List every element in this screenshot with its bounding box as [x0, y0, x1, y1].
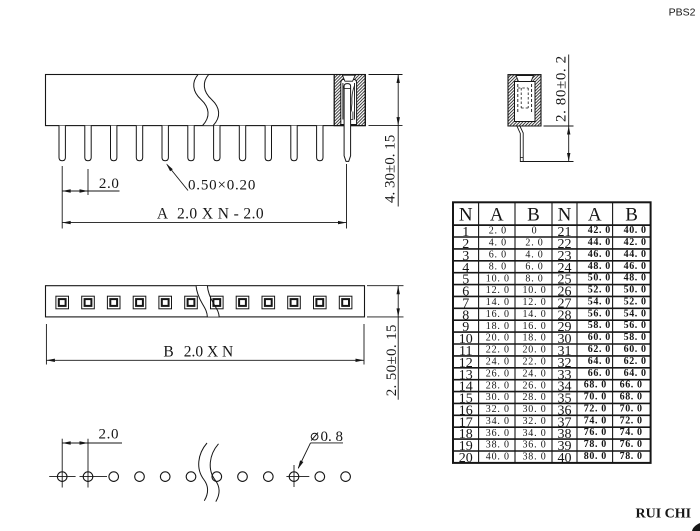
svg-text:54. 0: 54. 0 [588, 296, 611, 307]
svg-text:34. 0: 34. 0 [523, 428, 547, 439]
svg-text:70. 0: 70. 0 [620, 403, 643, 414]
svg-text:B: B [163, 343, 173, 360]
svg-text:38. 0: 38. 0 [486, 440, 510, 451]
svg-text:12. 0: 12. 0 [486, 285, 510, 296]
svg-text:RUI CHI: RUI CHI [636, 507, 692, 522]
svg-text:16. 0: 16. 0 [523, 321, 547, 332]
svg-text:6. 0: 6. 0 [489, 250, 507, 261]
svg-text:80. 0: 80. 0 [584, 451, 607, 462]
svg-text:18. 0: 18. 0 [523, 333, 547, 344]
svg-text:58. 0: 58. 0 [588, 320, 611, 331]
svg-text:24. 0: 24. 0 [523, 368, 547, 379]
svg-text:74. 0: 74. 0 [620, 427, 643, 438]
svg-text:38. 0: 38. 0 [523, 452, 547, 463]
svg-text:A: A [490, 204, 504, 225]
svg-text:2. 80±0. 2: 2. 80±0. 2 [553, 55, 569, 122]
svg-text:42. 0: 42. 0 [588, 225, 611, 236]
svg-text:72. 0: 72. 0 [620, 415, 643, 426]
svg-text:6. 0: 6. 0 [525, 261, 543, 272]
svg-text:10. 0: 10. 0 [486, 273, 510, 284]
svg-text:A: A [588, 204, 602, 225]
svg-text:28. 0: 28. 0 [486, 380, 510, 391]
svg-text:14. 0: 14. 0 [523, 309, 547, 320]
svg-text:42. 0: 42. 0 [624, 237, 647, 248]
svg-text:32. 0: 32. 0 [486, 404, 510, 415]
svg-text:2.0: 2.0 [99, 427, 120, 443]
svg-text:22. 0: 22. 0 [523, 357, 547, 368]
svg-text:12. 0: 12. 0 [523, 297, 547, 308]
svg-text:2.0: 2.0 [99, 176, 120, 192]
svg-text:32. 0: 32. 0 [523, 416, 547, 427]
svg-text:46. 0: 46. 0 [588, 249, 611, 260]
svg-text:52. 0: 52. 0 [588, 285, 611, 296]
svg-text:30. 0: 30. 0 [523, 404, 547, 415]
svg-text:8. 0: 8. 0 [489, 261, 507, 272]
svg-text:56. 0: 56. 0 [624, 320, 647, 331]
svg-text:40: 40 [558, 451, 572, 466]
svg-text:20: 20 [459, 451, 473, 466]
svg-text:10. 0: 10. 0 [523, 285, 547, 296]
svg-text:52. 0: 52. 0 [624, 296, 647, 307]
svg-text:N: N [558, 204, 572, 225]
svg-text:70. 0: 70. 0 [584, 392, 607, 403]
svg-text:68. 0: 68. 0 [620, 392, 643, 403]
svg-text:26. 0: 26. 0 [523, 380, 547, 391]
svg-text:2. 0: 2. 0 [525, 238, 543, 249]
svg-text:60. 0: 60. 0 [588, 332, 611, 343]
svg-text:46. 0: 46. 0 [624, 261, 647, 272]
svg-text:48. 0: 48. 0 [588, 261, 611, 272]
svg-text:22. 0: 22. 0 [486, 345, 510, 356]
svg-text:14. 0: 14. 0 [486, 297, 510, 308]
svg-text:4. 30±0. 15: 4. 30±0. 15 [383, 135, 399, 203]
svg-text:B: B [527, 204, 540, 225]
svg-text:2.0 X N: 2.0 X N [184, 343, 234, 360]
svg-text:66. 0: 66. 0 [588, 368, 611, 379]
svg-text:2. 0: 2. 0 [489, 226, 507, 237]
svg-text:56. 0: 56. 0 [588, 308, 611, 319]
svg-text:8. 0: 8. 0 [525, 273, 543, 284]
svg-text:A: A [157, 205, 169, 222]
svg-text:0. 8: 0. 8 [321, 429, 344, 445]
svg-text:50. 0: 50. 0 [588, 273, 611, 284]
svg-text:4. 0: 4. 0 [525, 250, 543, 261]
svg-text:24. 0: 24. 0 [486, 357, 510, 368]
svg-text:0: 0 [532, 226, 538, 237]
svg-text:48. 0: 48. 0 [624, 273, 647, 284]
svg-text:62. 0: 62. 0 [624, 356, 647, 367]
svg-text:64. 0: 64. 0 [624, 368, 647, 379]
svg-text:44. 0: 44. 0 [624, 249, 647, 260]
svg-text:36. 0: 36. 0 [486, 428, 510, 439]
svg-text:76. 0: 76. 0 [584, 427, 607, 438]
svg-text:4. 0: 4. 0 [489, 238, 507, 249]
svg-text:54. 0: 54. 0 [624, 308, 647, 319]
svg-text:60. 0: 60. 0 [624, 344, 647, 355]
svg-text:2. 50±0. 15: 2. 50±0. 15 [384, 324, 400, 396]
svg-text:20. 0: 20. 0 [486, 333, 510, 344]
svg-text:50. 0: 50. 0 [624, 285, 647, 296]
svg-text:66. 0: 66. 0 [620, 380, 643, 391]
svg-text:64. 0: 64. 0 [588, 356, 611, 367]
svg-text:16. 0: 16. 0 [486, 309, 510, 320]
svg-text:40. 0: 40. 0 [486, 452, 510, 463]
svg-text:40. 0: 40. 0 [624, 225, 647, 236]
svg-text:N: N [459, 204, 473, 225]
svg-text:44. 0: 44. 0 [588, 237, 611, 248]
svg-text:18. 0: 18. 0 [486, 321, 510, 332]
svg-text:36. 0: 36. 0 [523, 440, 547, 451]
svg-text:74. 0: 74. 0 [584, 415, 607, 426]
svg-text:30. 0: 30. 0 [486, 392, 510, 403]
svg-text:2.0 X N - 2.0: 2.0 X N - 2.0 [177, 205, 264, 222]
svg-text:20. 0: 20. 0 [523, 345, 547, 356]
svg-text:PBS2: PBS2 [669, 7, 696, 19]
svg-text:26. 0: 26. 0 [486, 368, 510, 379]
svg-text:62. 0: 62. 0 [588, 344, 611, 355]
svg-text:B: B [625, 204, 638, 225]
svg-text:68. 0: 68. 0 [584, 380, 607, 391]
svg-text:78. 0: 78. 0 [620, 451, 643, 462]
svg-text:78. 0: 78. 0 [584, 439, 607, 450]
svg-text:58. 0: 58. 0 [624, 332, 647, 343]
svg-text:76. 0: 76. 0 [620, 439, 643, 450]
svg-text:34. 0: 34. 0 [486, 416, 510, 427]
svg-text:28. 0: 28. 0 [523, 392, 547, 403]
svg-text:72. 0: 72. 0 [584, 403, 607, 414]
svg-text:0.50×0.20: 0.50×0.20 [188, 178, 256, 194]
